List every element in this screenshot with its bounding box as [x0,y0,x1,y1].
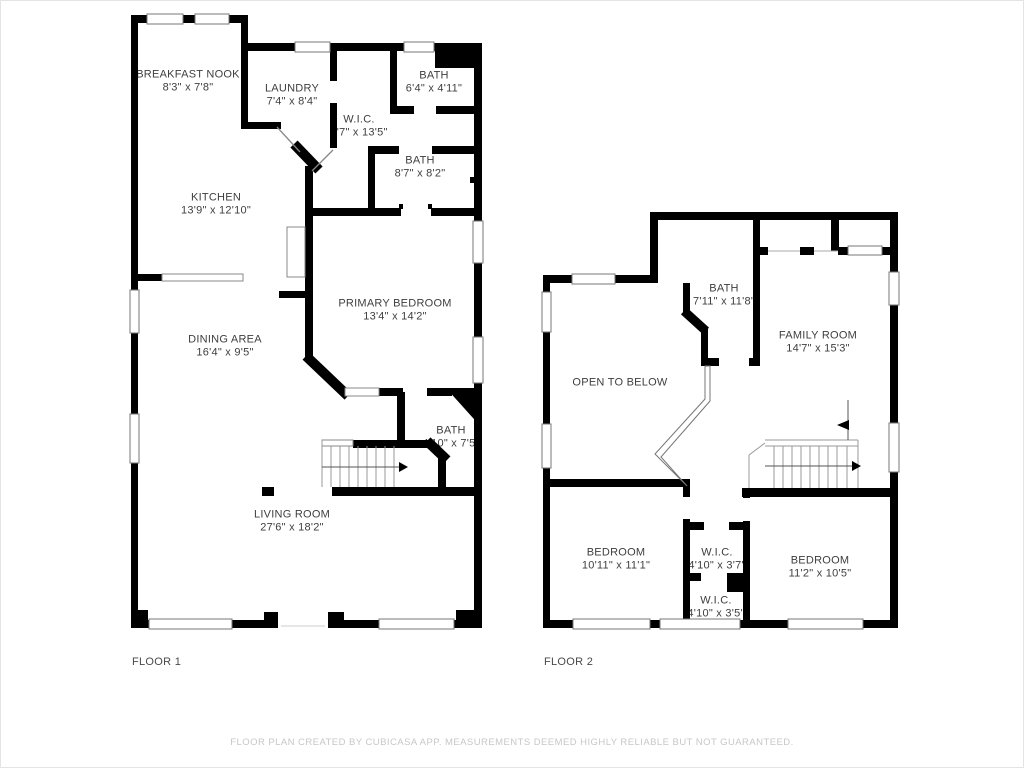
room-label-living-room: LIVING ROOM 27'6" x 18'2" [254,509,330,536]
room-name: BATH [406,70,462,83]
room-name: BATH [395,155,446,168]
room-label-open-to-below: OPEN TO BELOW [572,376,667,389]
room-name: BATH [693,283,755,296]
room-name: FAMILY ROOM [779,330,857,343]
floor-plan-page: BREAKFAST NOOK 8'3" x 7'8" LAUNDRY 7'4" … [0,0,1024,768]
room-label-wic-lower: W.I.C. 4'10" x 3'5" [687,595,744,622]
room-name: OPEN TO BELOW [572,376,667,389]
room-label-primary-bedroom: PRIMARY BEDROOM 13'4" x 14'2" [338,298,451,325]
room-label-family-room: FAMILY ROOM 14'7" x 15'3" [779,330,857,357]
disclaimer-text: FLOOR PLAN CREATED BY CUBICASA APP. MEAS… [0,737,1024,748]
room-dims: 4'10" x 3'5" [687,608,744,621]
room-label-bath-top: BATH 6'4" x 4'11" [406,70,462,97]
room-dims: 13'4" x 14'2" [338,311,451,324]
room-label-bedroom-left: BEDROOM 10'11" x 11'1" [582,547,650,574]
room-dims: 7'4" x 8'4" [265,96,319,109]
room-name: BEDROOM [789,555,852,568]
room-label-bath-mid: BATH 8'7" x 8'2" [395,155,446,182]
room-dims: 8'7" x 8'2" [395,168,446,181]
room-name: W.I.C. [330,114,387,127]
room-label-laundry: LAUNDRY 7'4" x 8'4" [265,83,319,110]
room-dims: 16'4" x 9'5" [188,347,262,360]
room-name: W.I.C. [687,595,744,608]
room-dims: 11'2" x 10'5" [789,568,852,581]
room-dims: 13'9" x 12'10" [181,205,251,218]
room-name: BEDROOM [582,547,650,560]
floor1-title: FLOOR 1 [132,656,181,668]
room-dims: 27'6" x 18'2" [254,522,330,535]
room-label-bath-stairs: BATH 4'10" x 7'5" [422,425,479,452]
room-dims: 10'11" x 11'1" [582,560,650,573]
room-labels-layer: BREAKFAST NOOK 8'3" x 7'8" LAUNDRY 7'4" … [0,0,1024,768]
room-label-breakfast-nook: BREAKFAST NOOK 8'3" x 7'8" [136,69,240,96]
room-label-bath-2f: BATH 7'11" x 11'8" [693,283,755,310]
room-dims: 7'11" x 11'8" [693,296,755,309]
room-name: DINING AREA [188,334,262,347]
room-name: PRIMARY BEDROOM [338,298,451,311]
room-name: BATH [422,425,479,438]
room-name: LAUNDRY [265,83,319,96]
floor2-title: FLOOR 2 [544,656,593,668]
room-dims: 14'7" x 15'3" [779,343,857,356]
room-label-bedroom-right: BEDROOM 11'2" x 10'5" [789,555,852,582]
room-name: W.I.C. [688,547,745,560]
room-dims: 5'7" x 13'5" [330,127,387,140]
room-name: LIVING ROOM [254,509,330,522]
room-label-wic-upper: W.I.C. 4'10" x 3'7" [688,547,745,574]
room-label-kitchen: KITCHEN 13'9" x 12'10" [181,192,251,219]
room-dims: 8'3" x 7'8" [136,82,240,95]
room-dims: 4'10" x 3'7" [688,560,745,573]
room-label-wic: W.I.C. 5'7" x 13'5" [330,114,387,141]
room-dims: 6'4" x 4'11" [406,83,462,96]
room-dims: 4'10" x 7'5" [422,438,479,451]
room-name: BREAKFAST NOOK [136,69,240,82]
room-name: KITCHEN [181,192,251,205]
room-label-dining-area: DINING AREA 16'4" x 9'5" [188,334,262,361]
